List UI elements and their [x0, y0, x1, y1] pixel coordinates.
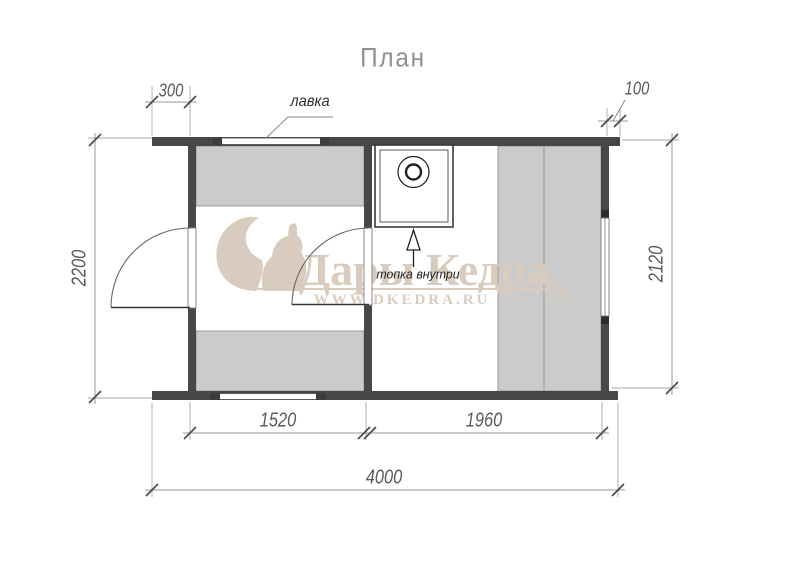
- door-partition-jamb: [364, 228, 372, 305]
- bench-strip-bottom: [210, 394, 326, 400]
- page-title: План: [360, 43, 426, 74]
- stove-chimney-outer: [398, 157, 429, 188]
- arrow-head: [407, 230, 420, 250]
- bench-restroom-outer: [544, 146, 601, 391]
- bench-strip-top: [212, 138, 330, 145]
- bench-strip-bottom-cap-right: [316, 393, 326, 400]
- bench-steamroom-top: [196, 146, 364, 206]
- dim-room-left-width: 1520: [260, 410, 296, 433]
- dim-depth-left: 2200: [69, 250, 92, 286]
- wall-partition-upper: [364, 146, 372, 229]
- door-exterior-jamb: [188, 228, 196, 308]
- dim-depth-right: 2120: [646, 246, 669, 282]
- bench-strip-top-cap-left: [212, 138, 222, 146]
- window-jamb-top: [601, 210, 609, 218]
- door-exterior: [111, 228, 196, 308]
- bench-strip-top-cap-right: [320, 138, 330, 146]
- dim-room-right-width: 1960: [466, 410, 502, 433]
- firebox-label: топка внутри: [376, 267, 459, 282]
- bench-leader: [266, 117, 333, 138]
- floor-plan-drawing: Дары Кедра WWW.DKEDRA.RU: [0, 0, 800, 565]
- squirrel-logo-icon: [216, 217, 262, 291]
- wall-right-upper: [601, 146, 609, 210]
- wall-partition-lower: [364, 305, 372, 391]
- window-jamb-bottom: [601, 316, 609, 324]
- door-exterior-swing-arc: [111, 228, 190, 307]
- wall-left-lower: [188, 308, 196, 391]
- wall-right-lower: [601, 324, 609, 391]
- dim-total-width: 4000: [366, 467, 402, 490]
- wall-left-upper: [188, 146, 196, 228]
- watermark-website: WWW.DKEDRA.RU: [314, 292, 491, 308]
- dim-overhang-right: 100: [625, 79, 650, 100]
- bench-strip-bottom-cap-left: [210, 393, 220, 400]
- bench-steamroom-bottom: [196, 331, 364, 391]
- dim-overhang-left: 300: [159, 81, 184, 102]
- stove: [375, 145, 453, 227]
- window-right: [601, 210, 609, 324]
- bench-label: лавка: [290, 93, 329, 111]
